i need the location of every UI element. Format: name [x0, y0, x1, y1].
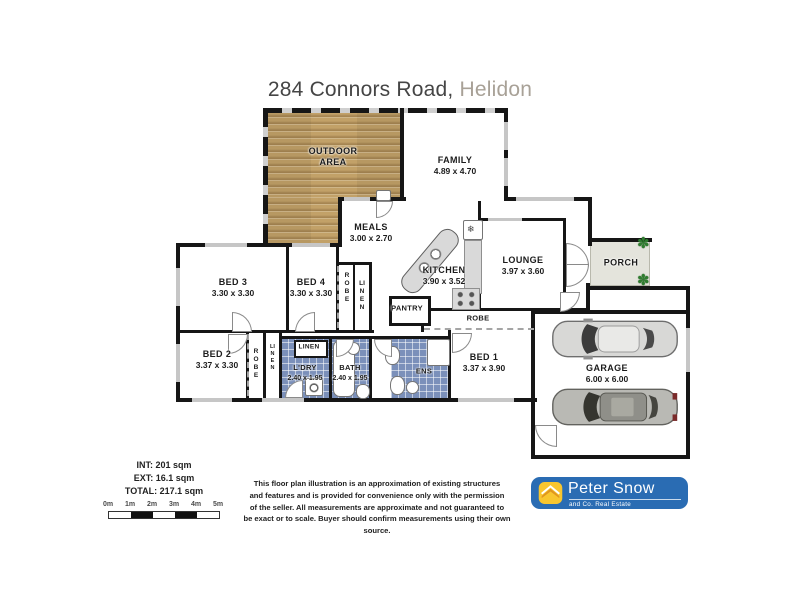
robe-label-bed2: ROBE	[252, 348, 260, 381]
scale-bar-segment	[197, 512, 219, 518]
agency-logo: Peter Snow and Co. Real Estate	[531, 477, 688, 509]
door-arc	[232, 312, 252, 332]
room-label-lounge: LOUNGE3.97 x 3.60	[502, 255, 545, 277]
robe-door-front	[337, 266, 341, 328]
window	[686, 328, 690, 372]
area-ext: EXT: 16.1 sqm	[108, 472, 220, 485]
scale-label: 0m	[103, 501, 113, 508]
area-total: TOTAL: 217.1 sqm	[108, 485, 220, 498]
room-label-bed1: BED 13.37 x 3.90	[463, 352, 506, 374]
shower	[427, 339, 450, 366]
page-title: 284 Connors Road, Helidon	[0, 78, 800, 102]
scale-bar-segment	[131, 512, 153, 518]
room-label-bed3: BED 33.30 x 3.30	[212, 277, 255, 299]
car-top-view	[550, 385, 680, 429]
robe-door-front	[247, 334, 251, 396]
door-arc	[452, 333, 472, 353]
wall-segment	[176, 330, 374, 333]
plant-icon: ✽	[637, 236, 650, 251]
agency-name: Peter Snow	[568, 480, 655, 498]
door-arc	[535, 425, 557, 447]
wall-segment	[531, 455, 690, 459]
wall-segment	[400, 108, 404, 201]
window	[176, 268, 180, 306]
area-summary: INT: 201 sqm EXT: 16.1 sqm TOTAL: 217.1 …	[108, 459, 220, 498]
wall-segment	[279, 332, 282, 400]
window	[205, 243, 247, 247]
scale-bar-segment	[175, 512, 197, 518]
car-top-view	[550, 317, 680, 361]
room-label-bath: BATH2.40 x 1.95	[332, 362, 367, 384]
wall-segment	[263, 332, 266, 398]
scale-bar-segment	[153, 512, 175, 518]
room-label-outdoor: OUTDOOR AREA	[309, 146, 358, 168]
toilet	[356, 384, 370, 399]
room-label-ldry: L'DRY2.40 x 1.95	[287, 362, 322, 384]
room-label-family: FAMILY4.89 x 4.70	[434, 155, 477, 177]
robe-label-bed1: ROBE	[467, 313, 490, 324]
window	[262, 398, 304, 402]
room-label-pantry: PANTRY	[391, 303, 423, 314]
scale-label: 2m	[147, 501, 157, 508]
window	[292, 243, 330, 247]
window	[458, 398, 514, 402]
room-label-garage: GARAGE6.00 x 6.00	[586, 363, 629, 385]
window	[504, 158, 508, 186]
window	[516, 197, 574, 201]
wall-segment	[263, 108, 268, 247]
robe-label-bed4: ROBE	[343, 272, 351, 305]
cooktop	[452, 288, 480, 310]
window	[176, 344, 180, 382]
wall-segment	[338, 197, 342, 247]
scale-label: 3m	[169, 501, 179, 508]
robe-door-front	[424, 326, 534, 330]
wall-segment	[263, 108, 508, 113]
agency-tagline: and Co. Real Estate	[569, 501, 631, 508]
title-address: 284 Connors Road,	[268, 78, 454, 101]
plant-icon: ✽	[637, 273, 650, 288]
outdoor-area-deck-lower	[265, 197, 340, 245]
fridge-icon: ❄	[467, 224, 475, 235]
room-label-meals: MEALS3.00 x 2.70	[350, 222, 393, 244]
wall-segment	[531, 310, 535, 459]
basin	[406, 381, 419, 394]
kitchen-counter	[464, 240, 482, 294]
wall-segment	[353, 262, 355, 332]
room-label-kitchen: KITCHEN3.90 x 3.52	[423, 265, 466, 287]
area-int: INT: 201 sqm	[108, 459, 220, 472]
wall-segment	[369, 262, 372, 332]
window	[488, 218, 522, 221]
scale-bar-segment	[109, 512, 131, 518]
room-label-bed4: BED 43.30 x 3.30	[290, 277, 333, 299]
wall-segment	[279, 336, 451, 339]
room-label-ens: ENS	[416, 366, 432, 377]
door-arc	[374, 339, 392, 357]
linen-label-box: LINEN	[299, 342, 320, 353]
linen-label-hall: LINEN	[358, 280, 366, 313]
house-roof-icon	[538, 481, 563, 505]
scale-label: 1m	[125, 501, 135, 508]
door-arc	[376, 201, 393, 218]
room-label-porch: PORCH	[604, 258, 639, 269]
wall-segment	[286, 245, 289, 332]
title-suburb: Helidon	[459, 78, 532, 101]
window	[192, 398, 232, 402]
scale-label: 4m	[191, 501, 201, 508]
disclaimer-text: This floor plan illustration is an appro…	[238, 478, 516, 537]
window	[504, 122, 508, 150]
toilet	[390, 376, 405, 395]
door-leaf	[376, 190, 391, 201]
door-arc	[295, 312, 315, 332]
entry-door-arc	[566, 243, 589, 266]
linen-label-small: LINEN	[269, 344, 276, 372]
room-label-bed2: BED 23.37 x 3.30	[196, 349, 239, 371]
floor-plan-canvas: 284 Connors Road, Helidon	[0, 0, 800, 600]
scale-bar	[108, 511, 220, 519]
window	[344, 197, 370, 201]
scale-label: 5m	[213, 501, 223, 508]
